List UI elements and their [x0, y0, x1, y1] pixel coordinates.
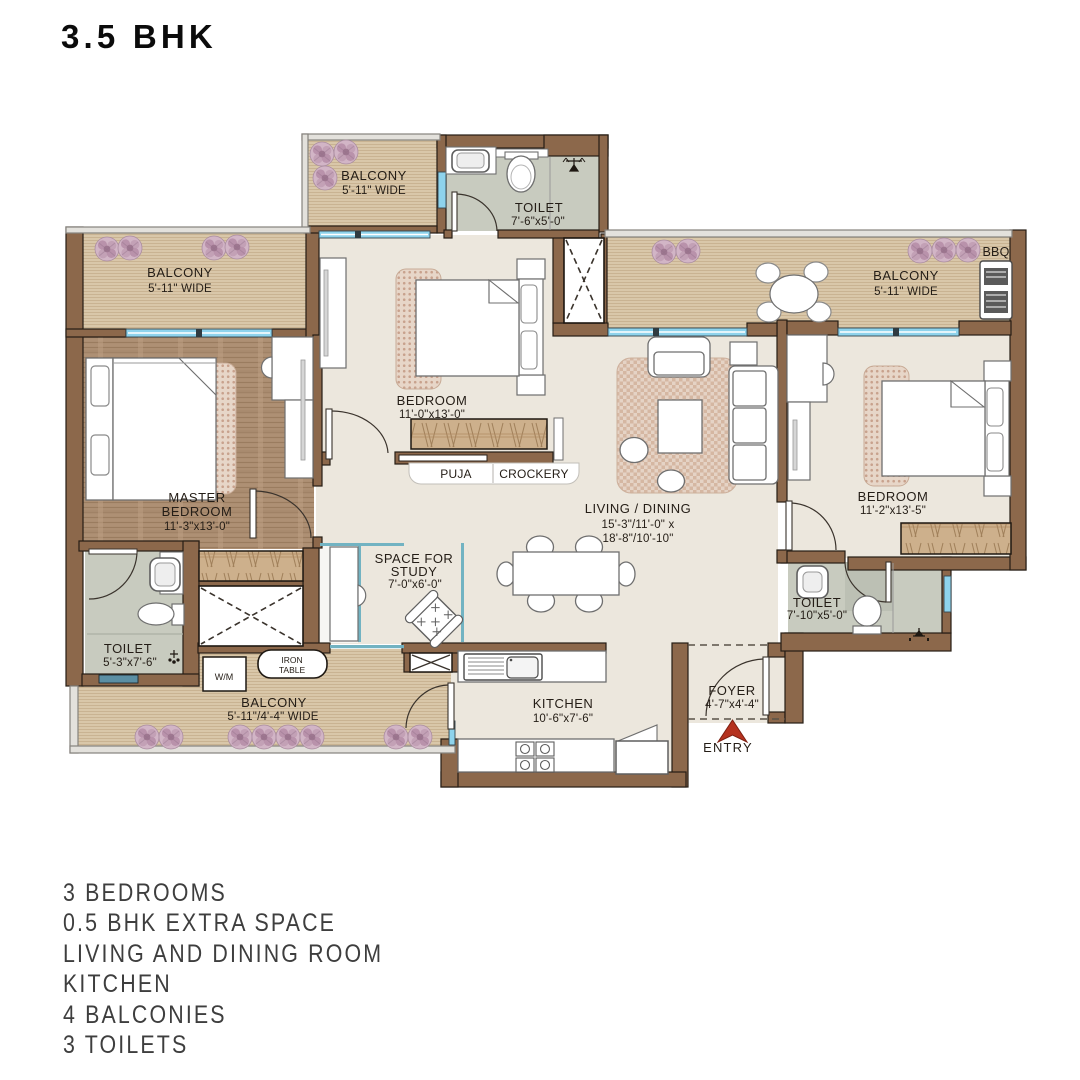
- svg-text:BALCONY: BALCONY: [873, 268, 939, 283]
- svg-text:BBQ: BBQ: [983, 245, 1010, 259]
- svg-text:TABLE: TABLE: [279, 665, 306, 675]
- svg-text:15'-3"/11'-0" x: 15'-3"/11'-0" x: [602, 519, 675, 531]
- svg-text:W/M: W/M: [215, 672, 234, 682]
- svg-text:LIVING / DINING: LIVING / DINING: [585, 501, 691, 516]
- svg-text:STUDY: STUDY: [391, 564, 438, 579]
- svg-text:KITCHEN: KITCHEN: [533, 696, 594, 711]
- svg-text:5'-11" WIDE: 5'-11" WIDE: [148, 283, 212, 295]
- svg-text:11'-0"x13'-0": 11'-0"x13'-0": [399, 409, 465, 421]
- svg-text:MASTER: MASTER: [168, 490, 225, 505]
- svg-text:TOILET: TOILET: [793, 595, 841, 610]
- svg-text:BEDROOM: BEDROOM: [858, 489, 929, 504]
- svg-text:11'-3"x13'-0": 11'-3"x13'-0": [164, 521, 230, 533]
- svg-text:7'-6"x5'-0": 7'-6"x5'-0": [511, 216, 565, 228]
- svg-text:BALCONY: BALCONY: [147, 265, 213, 280]
- svg-text:11'-2"x13'-5": 11'-2"x13'-5": [860, 505, 926, 517]
- svg-text:5'-3"x7'-6": 5'-3"x7'-6": [103, 657, 157, 669]
- svg-text:10'-6"x7'-6": 10'-6"x7'-6": [533, 713, 593, 725]
- svg-text:PUJA: PUJA: [440, 467, 471, 481]
- svg-text:IRON: IRON: [281, 655, 302, 665]
- svg-text:ENTRY: ENTRY: [703, 740, 753, 755]
- svg-text:5'-11" WIDE: 5'-11" WIDE: [342, 185, 406, 197]
- svg-text:BEDROOM: BEDROOM: [162, 504, 233, 519]
- svg-text:5'-11" WIDE: 5'-11" WIDE: [874, 286, 938, 298]
- svg-text:FOYER: FOYER: [708, 683, 755, 698]
- svg-text:BEDROOM: BEDROOM: [397, 393, 468, 408]
- svg-text:5'-11"/4'-4" WIDE: 5'-11"/4'-4" WIDE: [227, 711, 318, 723]
- svg-text:CROCKERY: CROCKERY: [499, 467, 568, 481]
- svg-text:TOILET: TOILET: [104, 641, 152, 656]
- svg-text:7'-0"x6'-0": 7'-0"x6'-0": [388, 579, 442, 591]
- svg-text:BALCONY: BALCONY: [241, 695, 307, 710]
- svg-text:18'-8"/10'-10": 18'-8"/10'-10": [603, 533, 674, 545]
- svg-text:4'-7"x4'-4": 4'-7"x4'-4": [705, 699, 759, 711]
- svg-text:7'-10"x5'-0": 7'-10"x5'-0": [787, 610, 847, 622]
- svg-text:BALCONY: BALCONY: [341, 168, 407, 183]
- svg-text:TOILET: TOILET: [515, 200, 563, 215]
